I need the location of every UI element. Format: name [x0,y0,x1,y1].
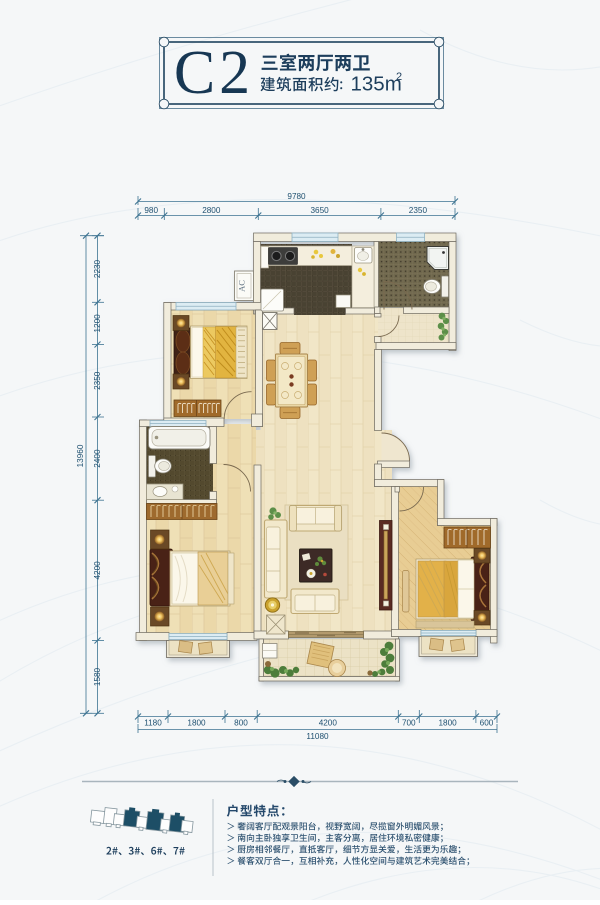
svg-text:AC: AC [237,280,247,292]
svg-text:1200: 1200 [93,314,102,333]
svg-text:2350: 2350 [409,206,428,215]
svg-text:4200: 4200 [319,719,338,728]
svg-text:3650: 3650 [310,206,329,215]
svg-text:1180: 1180 [144,719,162,728]
svg-text:9780: 9780 [287,192,306,201]
svg-text:135m: 135m [351,72,402,95]
svg-text:1800: 1800 [438,719,457,728]
svg-text:2: 2 [396,71,402,83]
svg-text:1800: 1800 [187,719,206,728]
svg-text:C2: C2 [174,39,254,107]
svg-text:800: 800 [234,719,248,728]
svg-text:2350: 2350 [93,371,102,390]
svg-text:1580: 1580 [93,667,102,686]
svg-text:700: 700 [402,719,416,728]
svg-text:4200: 4200 [93,561,102,580]
svg-text:：: ： [339,80,350,92]
svg-text:2230: 2230 [93,259,102,278]
svg-text:2400: 2400 [93,449,102,468]
svg-text:980: 980 [144,206,158,215]
svg-text:2800: 2800 [202,206,221,215]
svg-text:11080: 11080 [306,732,329,741]
svg-text:600: 600 [480,719,494,728]
svg-text:13960: 13960 [76,444,85,467]
